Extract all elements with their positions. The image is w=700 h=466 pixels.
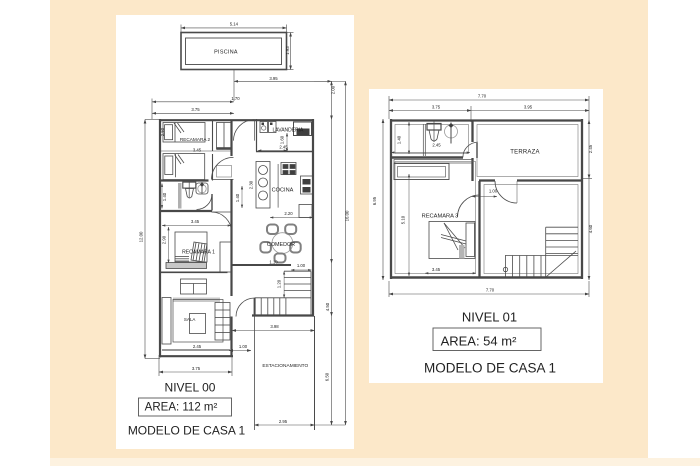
svg-text:1.00: 1.00 (489, 189, 498, 194)
svg-text:2.50: 2.50 (160, 127, 165, 136)
svg-text:NIVEL 01: NIVEL 01 (462, 310, 517, 325)
svg-text:MODELO DE CASA 1: MODELO DE CASA 1 (424, 361, 556, 376)
svg-text:2.95: 2.95 (279, 419, 288, 424)
svg-text:1.20: 1.20 (276, 279, 281, 288)
svg-text:1.40: 1.40 (397, 135, 402, 144)
svg-text:2.20: 2.20 (284, 211, 293, 216)
svg-text:RIA: RIA (295, 128, 304, 134)
svg-text:RECAMARA 1: RECAMARA 1 (182, 250, 215, 256)
svg-text:ESTACIONAMIENTO: ESTACIONAMIENTO (262, 363, 308, 369)
svg-text:3.75: 3.75 (191, 107, 200, 112)
svg-text:6.50: 6.50 (325, 372, 330, 381)
svg-text:SALA: SALA (184, 317, 196, 322)
svg-text:COMEDOR: COMEDOR (267, 242, 295, 248)
svg-text:1.00: 1.00 (297, 263, 306, 268)
svg-text:2.45: 2.45 (588, 144, 593, 153)
svg-text:5.10: 5.10 (401, 215, 406, 224)
svg-text:RECAMARA 2: RECAMARA 2 (180, 137, 211, 142)
svg-text:3.45: 3.45 (191, 219, 200, 224)
svg-text:NIVEL 00: NIVEL 00 (165, 381, 216, 395)
svg-text:1.00: 1.00 (239, 344, 248, 349)
svg-text:3.95: 3.95 (524, 104, 533, 109)
svg-text:2.00: 2.00 (331, 85, 336, 94)
svg-text:5.14: 5.14 (230, 21, 239, 26)
svg-text:LAVANDE: LAVANDE (273, 128, 296, 134)
svg-text:PISCINA: PISCINA (214, 50, 238, 56)
svg-text:3.95: 3.95 (269, 76, 278, 81)
svg-text:AREA: 54 m²: AREA: 54 m² (441, 334, 518, 349)
svg-text:3.75: 3.75 (432, 104, 441, 109)
svg-text:7.70: 7.70 (486, 288, 495, 293)
svg-text:3.45: 3.45 (432, 267, 441, 272)
svg-text:MODELO DE CASA 1: MODELO DE CASA 1 (128, 424, 246, 438)
svg-text:6.95: 6.95 (372, 196, 377, 205)
svg-text:2.45: 2.45 (432, 143, 441, 148)
svg-text:AREA: 112 m²: AREA: 112 m² (145, 402, 218, 414)
svg-text:1.60: 1.60 (280, 135, 285, 144)
svg-text:12.00: 12.00 (139, 231, 144, 242)
svg-text:1.10: 1.10 (269, 260, 278, 265)
svg-text:1.40: 1.40 (162, 192, 167, 201)
svg-text:RECAMARA 3: RECAMARA 3 (422, 214, 459, 220)
svg-text:4.60: 4.60 (588, 224, 593, 233)
svg-text:7.70: 7.70 (478, 94, 487, 99)
svg-text:3.98: 3.98 (270, 324, 279, 329)
svg-text:4.50: 4.50 (325, 302, 330, 311)
svg-text:2.90: 2.90 (162, 235, 167, 244)
svg-text:16.00: 16.00 (345, 210, 350, 221)
svg-text:2.45: 2.45 (193, 344, 202, 349)
svg-text:2.45: 2.45 (279, 145, 288, 150)
svg-text:1.93: 1.93 (285, 46, 290, 55)
svg-text:2.30: 2.30 (249, 180, 254, 189)
svg-text:1.70: 1.70 (231, 96, 240, 101)
svg-text:TERRAZA: TERRAZA (510, 150, 539, 156)
svg-text:3.45: 3.45 (193, 148, 202, 153)
svg-text:COCINA: COCINA (272, 188, 294, 194)
svg-text:1.40: 1.40 (235, 193, 240, 202)
svg-text:3.75: 3.75 (192, 366, 201, 371)
